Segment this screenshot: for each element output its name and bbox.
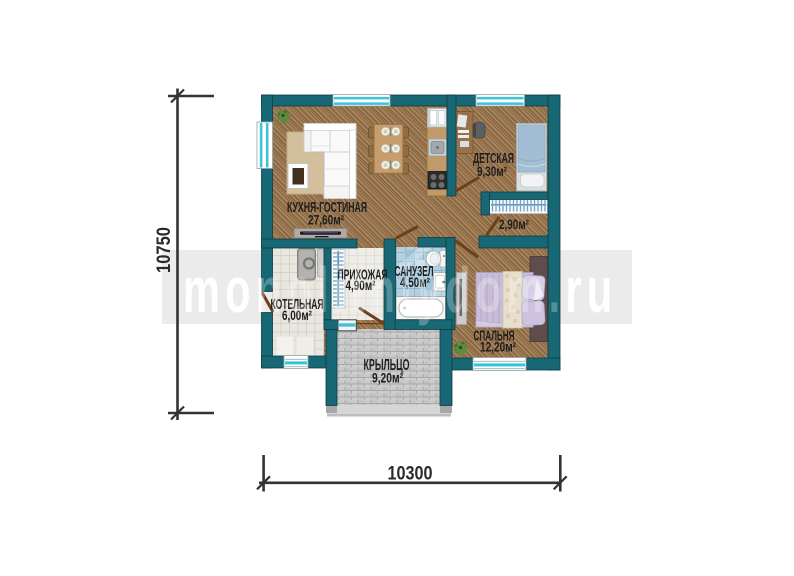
svg-text:27,60м²: 27,60м² [308, 212, 344, 228]
svg-text:2,90м²: 2,90м² [499, 216, 529, 232]
svg-text:12,20м²: 12,20м² [480, 339, 516, 355]
svg-text:10300: 10300 [388, 463, 433, 485]
svg-text:9,20м²: 9,20м² [372, 370, 403, 386]
svg-text:10750: 10750 [153, 227, 175, 273]
svg-text:9,30м²: 9,30м² [477, 163, 507, 179]
